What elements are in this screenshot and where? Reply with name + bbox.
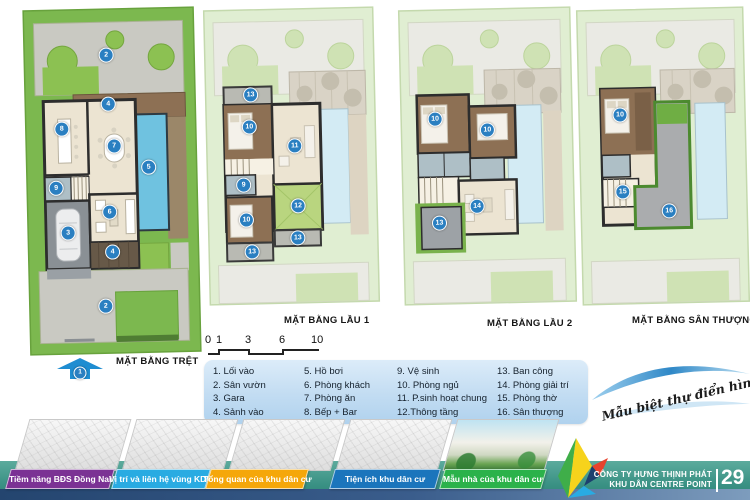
floorplan-rooftop-label: MẶT BẰNG SÂN THƯỢNG <box>632 315 750 326</box>
footer-bottom-strip <box>0 489 750 500</box>
wc-room <box>470 158 504 181</box>
scale-bar-rule <box>205 347 327 357</box>
floorplan-rooftop: 10 15 16 <box>575 4 750 308</box>
pool-faded <box>695 103 728 220</box>
floorplan-ground-label: MẶT BẰNG TRỆT <box>116 356 199 367</box>
company-line2: KHU DÂN CENTRE POINT <box>592 480 712 490</box>
tab-label: Tổng quan của khu dân cư <box>203 474 312 484</box>
wc-room <box>602 155 630 178</box>
legend-column: 13. Ban công 14. Phòng giải trí 15. Phòn… <box>497 365 569 419</box>
legend-item: 8. Bếp + Bar <box>304 406 370 420</box>
page-number: 29 <box>721 466 744 490</box>
scale-tick: 0 <box>205 334 211 346</box>
tab-thumbnail-location[interactable] <box>122 419 239 471</box>
legend-item: 16. Sân thượng <box>497 406 569 420</box>
scale-tick: 3 <box>245 334 251 346</box>
tab-thumbnail-potential[interactable] <box>15 419 132 471</box>
floorplan-ground: 2 4 8 7 5 9 6 3 4 2 <box>21 4 204 358</box>
tab-amenities[interactable]: Tiện ích khu dân cư <box>329 469 441 489</box>
floorplan-rooftop-drawing <box>575 4 750 308</box>
tab-overview[interactable]: Tổng quan của khu dân cư <box>205 469 309 489</box>
tab-label: Tiềm năng BĐS Đồng Nai <box>9 474 111 484</box>
legend-item: 1. Lối vào <box>213 365 266 379</box>
legend-panel: 1. Lối vào 2. Sân vườn 3. Gara 4. Sảnh v… <box>204 360 588 424</box>
tab-thumbnail-amenities[interactable] <box>336 419 453 471</box>
floorplan-level1-label: MẶT BẰNG LẦU 1 <box>284 315 369 326</box>
tab-location[interactable]: Vị trí và liên hệ vùng KDC <box>111 469 211 489</box>
legend-item: 10. Phòng ngủ <box>397 379 487 393</box>
company-logo-bird-icon <box>548 436 610 500</box>
tab-house-models[interactable]: Mẫu nhà của khu dân cư <box>439 469 547 489</box>
legend-item: 4. Sảnh vào <box>213 406 266 420</box>
legend-item: 12.Thông tầng <box>397 406 487 420</box>
company-line1: CÔNG TY HƯNG THỊNH PHÁT <box>592 470 712 480</box>
footer-divider <box>716 469 718 492</box>
scale-bar: 0 1 3 6 10 <box>205 334 327 358</box>
legend-column: 1. Lối vào 2. Sân vườn 3. Gara 4. Sảnh v… <box>213 365 266 419</box>
legend-item: 3. Gara <box>213 392 266 406</box>
slide-floor-plans: 2 4 8 7 5 9 6 3 4 2 1 MẶT BẰNG TRỆT <box>0 0 750 500</box>
tab-label: Vị trí và liên hệ vùng KDC <box>109 474 212 484</box>
legend-item: 15. Phòng thờ <box>497 392 569 406</box>
legend-column: 5. Hồ bơi 6. Phòng khách 7. Phòng ăn 8. … <box>304 365 370 419</box>
company-name: CÔNG TY HƯNG THỊNH PHÁT KHU DÂN CENTRE P… <box>592 470 712 489</box>
floorplan-level1: 13 10 11 9 12 10 13 13 <box>202 4 382 308</box>
floorplan-level2-drawing <box>397 4 579 308</box>
scale-tick: 1 <box>216 334 222 346</box>
legend-item: 11. P.sinh hoạt chung <box>397 392 487 406</box>
legend-item: 5. Hồ bơi <box>304 365 370 379</box>
scale-tick: 10 <box>311 334 323 346</box>
tab-label: Mẫu nhà của khu dân cư <box>443 474 543 484</box>
legend-item: 13. Ban công <box>497 365 569 379</box>
entrance-arrow-icon: 1 <box>55 358 105 380</box>
floorplan-level1-drawing <box>202 4 382 308</box>
tab-potential[interactable]: Tiềm năng BĐS Đồng Nai <box>5 469 115 489</box>
legend-item: 14. Phòng giải trí <box>497 379 569 393</box>
legend-item: 9. Vệ sinh <box>397 365 487 379</box>
floorplan-level2-label: MẶT BẰNG LẦU 2 <box>487 318 572 329</box>
tab-thumbnail-house-models[interactable] <box>443 419 560 471</box>
legend-item: 2. Sân vườn <box>213 379 266 393</box>
house <box>223 85 323 261</box>
floorplan-level2: 10 10 14 13 <box>397 4 579 308</box>
scale-tick: 6 <box>279 334 285 346</box>
room-marker: 1 <box>74 367 87 380</box>
legend-item: 6. Phòng khách <box>304 379 370 393</box>
legend-column: 9. Vệ sinh 10. Phòng ngủ 11. P.sinh hoạt… <box>397 365 487 419</box>
tab-thumbnail-overview[interactable] <box>229 419 346 471</box>
tab-label: Tiện ích khu dân cư <box>345 474 425 484</box>
tagline-block: Mẫu biệt thự điển hình <box>592 352 750 432</box>
legend-item: 7. Phòng ăn <box>304 392 370 406</box>
